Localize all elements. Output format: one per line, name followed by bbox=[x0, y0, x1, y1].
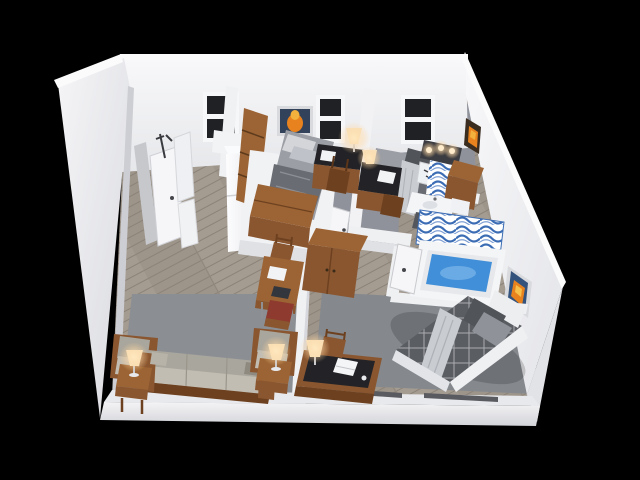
vanity-bulb-2 bbox=[438, 145, 444, 151]
wall-mirror bbox=[174, 132, 194, 202]
bathroom-door-handle bbox=[402, 268, 406, 272]
desk2-lamp-glow bbox=[357, 146, 381, 170]
floor-plan-render bbox=[0, 0, 640, 480]
table-lamp-left-glow bbox=[119, 342, 149, 372]
art-1-highlight bbox=[291, 110, 300, 120]
window-2-pane-top bbox=[320, 99, 341, 116]
sofa-pillow-left bbox=[150, 352, 168, 366]
bath-sink-basin bbox=[423, 201, 438, 209]
shoe-cabinet bbox=[178, 199, 198, 248]
back-wall-top-edge bbox=[120, 54, 468, 60]
vanity-bulb-1 bbox=[426, 147, 432, 153]
door-corridor-handle bbox=[342, 228, 346, 232]
table-lamp-right-glow bbox=[261, 336, 291, 366]
armoire-handle-left bbox=[326, 269, 329, 272]
window-3 bbox=[401, 95, 435, 144]
bath-sink-faucet bbox=[433, 197, 436, 200]
dining-table-top bbox=[256, 256, 304, 306]
entry-door-handle bbox=[170, 196, 174, 200]
window-2-pane-bottom bbox=[320, 121, 341, 139]
table-lamp-right-base bbox=[271, 367, 281, 371]
bathtub-water-highlight bbox=[440, 266, 476, 280]
desk1-chair bbox=[326, 168, 350, 194]
desk3-lamp-glow bbox=[300, 333, 330, 363]
table-lamp-left-base bbox=[129, 373, 139, 377]
armoire-handle-right bbox=[333, 270, 336, 273]
desk2-chair bbox=[380, 194, 404, 218]
window-3-pane-top bbox=[405, 99, 431, 117]
floor-plan-svg bbox=[0, 0, 640, 480]
art-back-wall bbox=[277, 106, 313, 136]
vanity-bulb-3 bbox=[449, 148, 455, 154]
desk3-mouse bbox=[362, 376, 367, 381]
window-3-pane-bottom bbox=[405, 122, 431, 140]
